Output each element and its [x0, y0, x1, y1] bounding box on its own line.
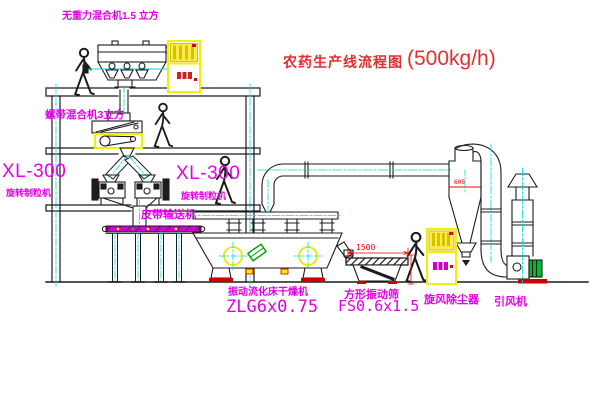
person-second-floor: [155, 104, 172, 147]
induced-draft-fan: [507, 256, 547, 284]
cyclone-separator: [449, 144, 510, 277]
fluid-bed-dryer: [188, 212, 352, 282]
flow-diagram-canvas: 无重力混合机1.5 立方 农药生产线流程图 (500kg/h) 螺带混合机3立方…: [0, 0, 600, 403]
feed-duct-elbow: [258, 162, 452, 215]
ribbon-mixer: [92, 113, 142, 156]
production-line-drawing: [0, 0, 600, 403]
belt-conveyor: [102, 226, 204, 284]
control-cabinet-right: [427, 229, 456, 284]
control-cabinet-top: [168, 41, 200, 92]
person-third-floor: [216, 157, 235, 204]
dryer-exhaust-nozzles: [227, 219, 334, 233]
granulators: [92, 175, 169, 208]
person-ground-floor: [407, 233, 427, 282]
vibrating-screen: [344, 248, 414, 284]
